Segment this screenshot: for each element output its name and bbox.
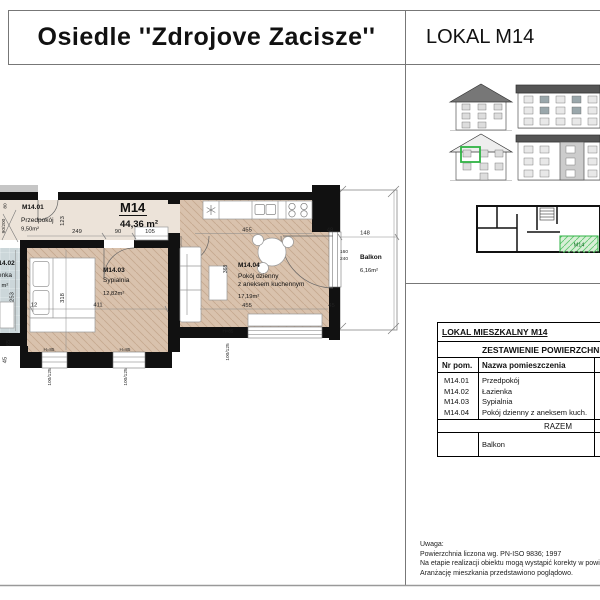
living-area: 17,19m² xyxy=(238,294,259,300)
area-table-total-row: RAZEM xyxy=(438,420,600,433)
bedroom-area: 12,82m² xyxy=(103,291,124,297)
area-table-header-row: Nr pom. Nazwa pomieszczenia xyxy=(438,358,600,373)
dim-balc-door-h: 240 xyxy=(340,256,348,262)
elevation-front-right xyxy=(450,134,512,181)
unit-code: M14 xyxy=(120,200,146,215)
dim-corner-a: 65 xyxy=(6,340,12,346)
sideboard xyxy=(248,314,322,326)
dim-corner-b: 45 xyxy=(3,357,9,363)
room-number: M14.01 xyxy=(444,376,469,387)
dim-balc-width: 148 xyxy=(360,231,370,237)
bath-code: M14.02 xyxy=(0,260,15,267)
dim-win2-h: H=85 xyxy=(120,347,131,352)
dim-liv-win-size: 100/125 xyxy=(225,343,231,361)
col-header-number: Nr pom. xyxy=(442,358,472,373)
room-number: M14.04 xyxy=(444,408,469,419)
living-window xyxy=(248,327,322,338)
keyplan-unit-label: M14 xyxy=(574,243,585,249)
dim-left-top: 80 xyxy=(3,203,9,209)
room-number: M14.03 xyxy=(444,397,469,408)
room-name: Przedpokój xyxy=(482,376,587,387)
notes: Uwaga: Powierzchnia liczona wg. PN-ISO 9… xyxy=(420,540,600,578)
elevation-side-left xyxy=(516,85,600,129)
bath-area: m² xyxy=(2,283,9,289)
area-table-title-row: LOKAL MIESZKALNY M14 xyxy=(438,323,600,342)
sheet-linework: 249 90 105 123 80 90/200 12 411 318 253 … xyxy=(0,0,600,600)
room-numbers: M14.01 M14.02 M14.03 M14.04 xyxy=(444,376,469,418)
project-title: Osiedle ''Zdrojove Zacisze'' xyxy=(8,10,405,65)
note-line: Na etapie realizacji obiektu mogą wystąp… xyxy=(420,559,600,569)
col-header-name: Nazwa pomieszczenia xyxy=(482,358,566,373)
key-plan: M14 xyxy=(477,206,600,252)
area-table-balcony-row: Balkon xyxy=(438,433,600,456)
bath-name: Łazienka xyxy=(0,272,12,279)
dim-bed-width: 411 xyxy=(93,303,102,309)
dim-liv-depth: 368 xyxy=(223,265,229,274)
area-table-title: LOKAL MIESZKALNY M14 xyxy=(442,327,547,337)
dim-win1-size: 100/125 xyxy=(47,368,53,386)
dim-hall-seg1: 249 xyxy=(72,229,82,235)
dim-liv-top: 455 xyxy=(242,228,252,234)
dim-balc-corner: 48 xyxy=(327,228,333,234)
balcony-name: Balkon xyxy=(360,254,382,261)
living-name-2: z aneksem kuchennym xyxy=(238,281,304,288)
dim-liv-win-h: H=85 xyxy=(223,329,234,334)
living-code: M14.04 xyxy=(238,262,260,269)
bedroom-code: M14.03 xyxy=(103,267,125,274)
dim-win1-h: H=85 xyxy=(44,347,55,352)
dim-win2-size: 100/125 xyxy=(123,368,129,386)
balcony-area: 6,16m² xyxy=(360,268,378,274)
area-table-data-rows: M14.01 M14.02 M14.03 M14.04 Przedpokój Ł… xyxy=(438,373,600,420)
hall-area: 9,50m² xyxy=(21,227,39,233)
room-name: Łazienka xyxy=(482,387,587,398)
kitchen-counter xyxy=(203,201,312,219)
dim-liv-bottom: 455 xyxy=(242,303,252,309)
dim-balc-side: 45 xyxy=(328,303,334,309)
area-table-subtitle-row: ZESTAWIENIE POWIERZCHNI xyxy=(438,342,600,358)
total-label: RAZEM xyxy=(544,422,572,431)
note-line: Uwaga: xyxy=(420,540,600,550)
balcony-label: Balkon xyxy=(482,433,505,456)
keyplan-stairs xyxy=(540,208,554,220)
room-name: Sypialnia xyxy=(482,397,587,408)
dim-bath-depth: 253 xyxy=(10,292,16,302)
dim-bed-depth: 318 xyxy=(60,293,66,303)
bedroom-window-1 xyxy=(42,352,67,368)
room-number: M14.02 xyxy=(444,387,469,398)
note-line: Aranżację mieszkania przedstawiono poglą… xyxy=(420,569,600,579)
living-name-1: Pokój dzienny xyxy=(238,273,279,280)
bedroom-window-2 xyxy=(113,352,145,368)
area-table: LOKAL MIESZKALNY M14 ZESTAWIENIE POWIERZ… xyxy=(437,322,600,457)
unit-title: LOKAL M14 xyxy=(406,10,600,65)
elevation-side-right xyxy=(516,135,600,181)
dim-left-door: 90/200 xyxy=(1,218,7,233)
dim-hall-depth: 123 xyxy=(60,216,66,226)
bath-washer xyxy=(0,302,14,328)
hall-code: M14.01 xyxy=(22,204,44,211)
area-table-subtitle: ZESTAWIENIE POWIERZCHNI xyxy=(482,345,600,355)
drawing-sheet: { "header": { "project_title": "Osiedle … xyxy=(0,0,600,600)
sofa xyxy=(180,247,201,322)
room-name: Pokój dzienny z aneksem kuch. xyxy=(482,408,587,419)
unit-area: 44,36 m² xyxy=(120,219,158,230)
dim-bed-small: 12 xyxy=(31,303,37,309)
elevations xyxy=(450,84,600,181)
note-line: Powierzchnia liczona wg. PN-ISO 9836; 19… xyxy=(420,550,600,560)
room-names: Przedpokój Łazienka Sypialnia Pokój dzie… xyxy=(482,376,587,418)
hall-name: Przedpokój xyxy=(21,217,54,224)
dim-balc-door-w: 160 xyxy=(340,249,348,255)
bedroom-name: Sypialnia xyxy=(103,277,130,284)
elevation-front-left xyxy=(450,84,512,131)
